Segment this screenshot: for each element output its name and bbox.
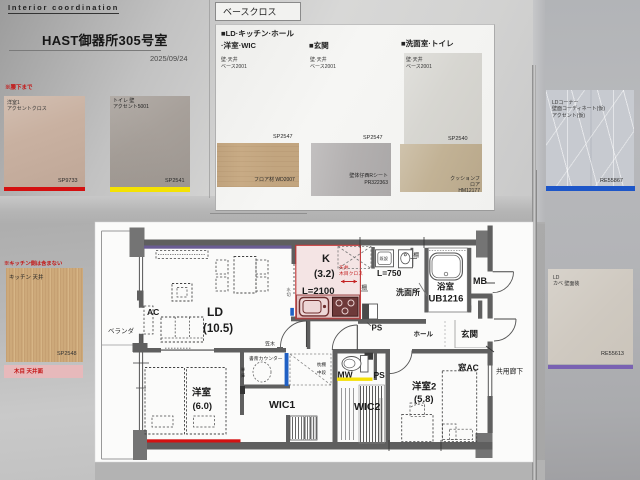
svg-text:UB1216: UB1216 <box>429 294 464 305</box>
svg-text:天井: 天井 <box>339 264 349 271</box>
svg-text:庫: 庫 <box>241 372 245 378</box>
svg-text:棚: 棚 <box>414 251 420 259</box>
svg-text:浴室: 浴室 <box>437 282 455 292</box>
svg-text:中段: 中段 <box>317 369 326 376</box>
svg-text:WIC1: WIC1 <box>269 399 295 411</box>
svg-text:AC: AC <box>147 307 159 317</box>
svg-text:L=2100: L=2100 <box>302 286 335 297</box>
svg-text:洋室: 洋室 <box>192 387 212 399</box>
svg-text:洗面所: 洗面所 <box>396 287 420 297</box>
svg-text:WIC2: WIC2 <box>354 401 380 413</box>
svg-text:切: 切 <box>287 291 291 298</box>
svg-text:木目クロス: 木目クロス <box>339 270 363 277</box>
svg-text:L=750: L=750 <box>377 268 402 278</box>
svg-text:玄関: 玄関 <box>461 329 478 339</box>
svg-text:PS: PS <box>374 370 386 380</box>
svg-text:ホール: ホール <box>414 330 434 338</box>
svg-text:棚: 棚 <box>362 284 368 292</box>
svg-text:洋室2: 洋室2 <box>412 381 436 393</box>
svg-text:(6.0): (6.0) <box>193 401 213 412</box>
svg-text:(3.2): (3.2) <box>314 269 335 280</box>
svg-text:書斎カウンター: 書斎カウンター <box>249 355 283 362</box>
svg-text:単: 単 <box>241 366 245 372</box>
svg-text:(10.5): (10.5) <box>203 323 233 335</box>
svg-text:共用廊下: 共用廊下 <box>496 367 523 376</box>
svg-text:既設: 既設 <box>380 255 389 262</box>
svg-text:LD: LD <box>207 305 223 319</box>
svg-text:MB: MB <box>473 276 487 286</box>
svg-text:枕棚: 枕棚 <box>317 361 326 368</box>
svg-text:PS: PS <box>372 324 383 333</box>
svg-text:笠木: 笠木 <box>265 341 275 348</box>
svg-text:ベランダ: ベランダ <box>108 326 135 335</box>
svg-text:K: K <box>322 253 330 265</box>
